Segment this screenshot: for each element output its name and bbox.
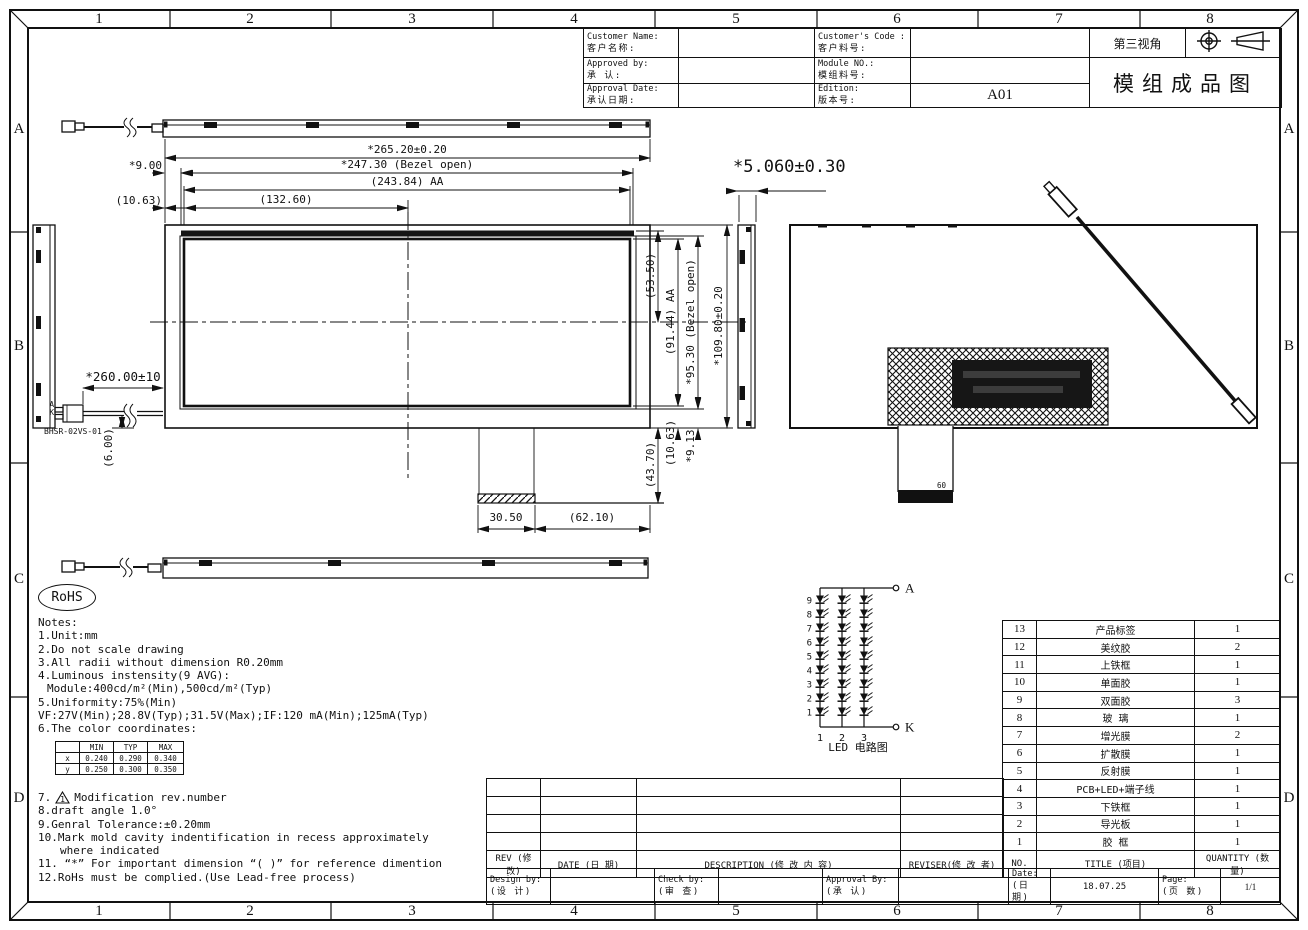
frame-col-label: 1	[95, 11, 103, 28]
customer-name-label: Customer Name:客户名称:	[584, 29, 679, 58]
rev-cell	[901, 779, 1004, 797]
approved-by-label: Approved by:承 认:	[584, 58, 679, 84]
bom-no: 1	[1003, 833, 1037, 851]
note-line: 10.Mark mold cavity indentification in r…	[38, 831, 442, 844]
customer-code-value	[911, 29, 1090, 58]
note-line: 11. “*” For important dimension “( )” fo…	[38, 857, 442, 870]
frame-col-label: 1	[95, 903, 103, 920]
frame-col-label: 5	[732, 11, 740, 28]
dim-wire-exit: (6.00)	[103, 428, 115, 468]
bom-title: 美纹胶	[1037, 638, 1195, 656]
rev-cell	[487, 815, 541, 833]
dim-wire-length: *260.00±10	[85, 370, 160, 384]
design-by-label: Design by:(设 计)	[487, 869, 551, 905]
projection-angle-label: 第三视角	[1090, 29, 1186, 58]
color-cell: 0.290	[114, 753, 148, 764]
approval-block: Design by:(设 计) Check by:(审 查) Approval …	[486, 868, 1281, 905]
rev-cell	[541, 797, 637, 815]
frame-col-label: 7	[1055, 903, 1063, 920]
bom-qty: 1	[1195, 833, 1281, 851]
rev-cell	[487, 833, 541, 851]
color-header: MAX	[148, 742, 184, 753]
bom-qty: 1	[1195, 709, 1281, 727]
frame-col-label: 7	[1055, 11, 1063, 28]
page-label: Page:(页 数)	[1159, 869, 1221, 905]
dim-edge-left2: (10.63)	[116, 195, 162, 207]
page-value: 1/1	[1221, 869, 1281, 905]
bom-qty: 2	[1195, 727, 1281, 745]
drawing-title: 模组成品图	[1090, 58, 1282, 108]
svg-text:5: 5	[807, 653, 812, 663]
frame-col-label: 6	[893, 11, 901, 28]
color-cell: 0.300	[114, 764, 148, 775]
date-value: 18.07.25	[1051, 869, 1159, 905]
rev-cell	[541, 833, 637, 851]
color-header: TYP	[114, 742, 148, 753]
revision-triangle-icon: 1	[55, 791, 70, 804]
svg-text:4: 4	[807, 667, 812, 677]
frame-col-label: 8	[1206, 903, 1214, 920]
bom-no: 8	[1003, 709, 1037, 727]
bom-qty: 1	[1195, 744, 1281, 762]
bom-no: 10	[1003, 674, 1037, 692]
bom-title: 上铁框	[1037, 656, 1195, 674]
led-circuit-caption: LED 电路图	[828, 742, 888, 754]
check-by-label: Check by:(审 查)	[655, 869, 719, 905]
frame-row-label: A	[14, 121, 25, 138]
frame-row-label: D	[1284, 790, 1295, 807]
rev-cell	[901, 815, 1004, 833]
dim-label-offset: (62.10)	[569, 512, 615, 524]
color-cell: x	[56, 753, 80, 764]
color-cell: 0.240	[80, 753, 114, 764]
notes-block: Notes: 1.Unit:mm 2.Do not scale drawing …	[38, 616, 429, 736]
engineering-drawing-sheet: AK987654321123 1 2 3 4 5 6 7 8 1 2 3 4 5…	[0, 0, 1308, 930]
note7-prefix: 7.	[38, 791, 51, 804]
rev-cell	[487, 779, 541, 797]
rev-cell	[637, 797, 901, 815]
note7-text: Modification rev.number	[74, 791, 226, 804]
rev-cell	[901, 833, 1004, 851]
frame-col-label: 8	[1206, 11, 1214, 28]
note-line: 9.Genral Tolerance:±0.20mm	[38, 818, 442, 831]
dim-height-top: (53.50)	[645, 253, 657, 299]
bom-no: 11	[1003, 656, 1037, 674]
note-line: 4.Luminous instensity(9 AVG):	[38, 669, 429, 682]
module-no-label: Module NO.:模组料号:	[815, 58, 911, 84]
dim-label-width: 30.50	[489, 512, 522, 524]
svg-text:1: 1	[807, 709, 812, 719]
dim-height-bezel: *95.30 (Bezel open)	[685, 259, 697, 385]
rev-cell	[541, 815, 637, 833]
bom-qty: 1	[1195, 797, 1281, 815]
rev-cell	[901, 797, 1004, 815]
note-line: VF:27V(Min);28.8V(Typ);31.5V(Max);IF:120…	[38, 709, 429, 722]
dim-bottom-a: (43.70)	[645, 442, 657, 488]
bom-qty: 1	[1195, 656, 1281, 674]
color-header	[56, 742, 80, 753]
bom-no: 3	[1003, 797, 1037, 815]
dim-thickness: *5.060±0.30	[733, 158, 846, 177]
title-block: Customer Name:客户名称: Customer's Code :客户料…	[583, 28, 1282, 108]
bom-no: 4	[1003, 780, 1037, 798]
frame-col-label: 2	[246, 11, 254, 28]
bom-no: 2	[1003, 815, 1037, 833]
design-by-value	[551, 869, 655, 905]
connector-part-number: BHSR-02VS-01	[44, 428, 102, 437]
color-cell: 0.250	[80, 764, 114, 775]
bom-qty: 2	[1195, 638, 1281, 656]
approval-by-label: Approval By:(承 认)	[823, 869, 899, 905]
note-line: 3.All radii without dimension R0.20mm	[38, 656, 429, 669]
dim-bottom-b: (10.63)	[665, 420, 677, 466]
approval-date-label: Approval Date:承认日期:	[584, 84, 679, 108]
rev-cell	[637, 815, 901, 833]
frame-col-label: 2	[246, 903, 254, 920]
pin-k-label: K	[49, 409, 54, 417]
frame-row-label: C	[1284, 571, 1294, 588]
note-line: 12.RoHs must be complied.(Use Lead-free …	[38, 871, 442, 884]
color-cell: 0.350	[148, 764, 184, 775]
rev-cell	[637, 779, 901, 797]
dim-height-total: *109.80±0.20	[713, 286, 725, 365]
approval-date-value	[679, 84, 815, 108]
frame-col-label: 3	[408, 11, 416, 28]
note-line: 6.The color coordinates:	[38, 722, 429, 735]
bom-title: 玻 璃	[1037, 709, 1195, 727]
frame-row-label: B	[14, 338, 24, 355]
customer-code-label: Customer's Code :客户料号:	[815, 29, 911, 58]
module-no-value	[911, 58, 1090, 84]
frame-col-label: 5	[732, 903, 740, 920]
svg-text:3: 3	[807, 681, 812, 691]
check-by-value	[719, 869, 823, 905]
bom-qty: 1	[1195, 815, 1281, 833]
svg-text:A: A	[905, 581, 915, 596]
note-line: where indicated	[38, 844, 442, 857]
approval-by-value	[899, 869, 1009, 905]
rohs-badge: RoHS	[38, 584, 96, 611]
bom-title: 单面胶	[1037, 674, 1195, 692]
color-coordinates-table: MIN TYP MAX x 0.240 0.290 0.340 y 0.250 …	[55, 741, 184, 775]
frame-row-label: B	[1284, 338, 1294, 355]
svg-text:8: 8	[807, 611, 812, 621]
dim-edge-left: *9.00	[129, 160, 162, 172]
bom-title: 下铁框	[1037, 797, 1195, 815]
note-line: 2.Do not scale drawing	[38, 643, 429, 656]
note-line: 1.Unit:mm	[38, 629, 429, 642]
bom-no: 12	[1003, 638, 1037, 656]
bom-title: 胶 框	[1037, 833, 1195, 851]
svg-text:1: 1	[60, 795, 65, 804]
bom-no: 6	[1003, 744, 1037, 762]
edition-value: A01	[911, 84, 1090, 108]
dim-height-aa: (91.44) AA	[665, 289, 677, 355]
bom-title: 导光板	[1037, 815, 1195, 833]
bom-title: 扩散膜	[1037, 744, 1195, 762]
customer-name-value	[679, 29, 815, 58]
third-angle-projection-icon	[1186, 29, 1282, 58]
edition-label: Edition:版本号:	[815, 84, 911, 108]
bom-no: 7	[1003, 727, 1037, 745]
bom-qty: 1	[1195, 780, 1281, 798]
note-line-7: 7. 1 Modification rev.number	[38, 791, 442, 804]
svg-text:6: 6	[807, 639, 812, 649]
rev-cell	[637, 833, 901, 851]
color-cell: y	[56, 764, 80, 775]
bom-no: 5	[1003, 762, 1037, 780]
color-header: MIN	[80, 742, 114, 753]
note-line: 8.draft angle 1.0°	[38, 804, 442, 817]
revision-table: REV (修改) DATE (日 期) DESCRIPTION (修 改 内 容…	[486, 778, 1004, 878]
rev-cell	[487, 797, 541, 815]
svg-text:7: 7	[807, 625, 812, 635]
bom-no: 9	[1003, 691, 1037, 709]
fpc-marking: 60	[937, 482, 946, 490]
bom-table: 13产品标签1 12美纹胶2 11上铁框1 10单面胶1 9双面胶3 8玻 璃1…	[1002, 620, 1281, 878]
bom-qty: 1	[1195, 674, 1281, 692]
svg-text:9: 9	[807, 597, 812, 607]
bom-no: 13	[1003, 621, 1037, 639]
bom-qty: 1	[1195, 621, 1281, 639]
bom-qty: 1	[1195, 762, 1281, 780]
dim-width-bezel: *247.30 (Bezel open)	[341, 159, 473, 171]
notes-heading: Notes:	[38, 616, 429, 629]
notes-block-2: 7. 1 Modification rev.number 8.draft ang…	[38, 791, 442, 884]
svg-text:1: 1	[817, 733, 823, 744]
bom-qty: 3	[1195, 691, 1281, 709]
rev-cell	[541, 779, 637, 797]
note-line: Module:400cd/m²(Min),500cd/m²(Typ)	[38, 682, 429, 695]
bom-title: 双面胶	[1037, 691, 1195, 709]
dim-width-aa: (243.84) AA	[371, 176, 444, 188]
frame-col-label: 4	[570, 903, 578, 920]
frame-row-label: C	[14, 571, 24, 588]
bom-title: 增光膜	[1037, 727, 1195, 745]
dim-bottom-c: *9.13	[685, 429, 697, 462]
date-label: Date:(日 期)	[1009, 869, 1051, 905]
frame-col-label: 4	[570, 11, 578, 28]
dim-width-half: (132.60)	[260, 194, 313, 206]
frame-col-label: 3	[408, 903, 416, 920]
frame-row-label: D	[14, 790, 25, 807]
bom-title: 反射膜	[1037, 762, 1195, 780]
svg-text:2: 2	[807, 695, 812, 705]
bom-title: 产品标签	[1037, 621, 1195, 639]
color-cell: 0.340	[148, 753, 184, 764]
bom-title: PCB+LED+端子线	[1037, 780, 1195, 798]
note-line: 5.Uniformity:75%(Min)	[38, 696, 429, 709]
dim-width-total: *265.20±0.20	[367, 144, 446, 156]
frame-row-label: A	[1284, 121, 1295, 138]
frame-col-label: 6	[893, 903, 901, 920]
svg-text:K: K	[905, 720, 915, 735]
approved-by-value	[679, 58, 815, 84]
